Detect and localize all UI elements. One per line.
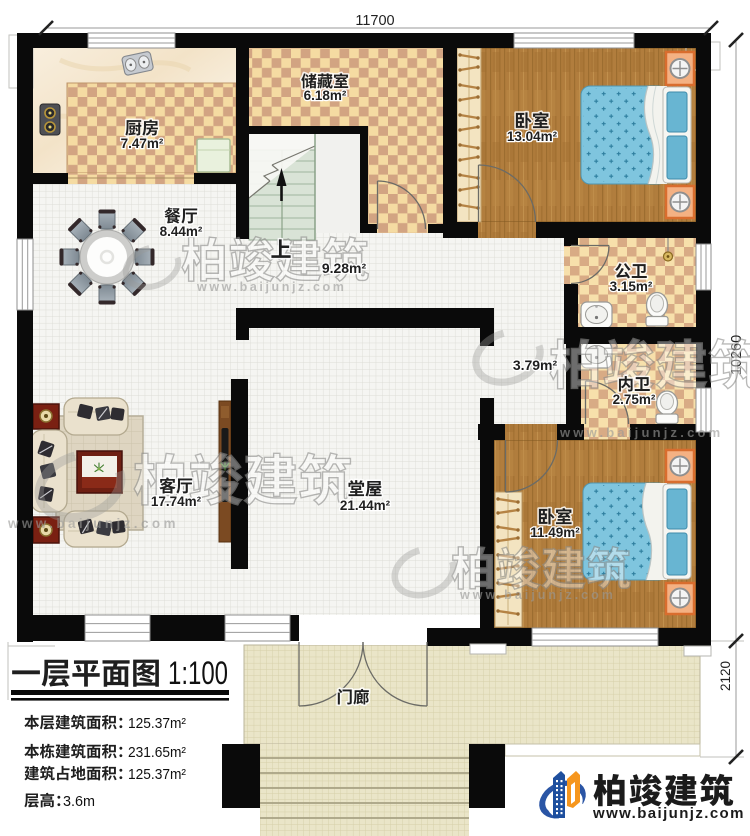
svg-text:www.baijunjz.com: www.baijunjz.com — [592, 805, 745, 822]
svg-text:www.baijunjz.com: www.baijunjz.com — [459, 588, 616, 602]
svg-text:2120: 2120 — [718, 661, 733, 691]
svg-text:11700: 11700 — [355, 13, 394, 29]
svg-text:www.baijunjz.com: www.baijunjz.com — [559, 425, 723, 440]
svg-text:125.37m²: 125.37m² — [128, 716, 186, 732]
svg-text:231.65m²: 231.65m² — [128, 745, 186, 761]
svg-text:7.47m²: 7.47m² — [121, 136, 164, 151]
svg-text:2.75m²: 2.75m² — [613, 392, 656, 407]
svg-text:17.74m²: 17.74m² — [151, 494, 202, 509]
svg-text:6.18m²: 6.18m² — [304, 88, 347, 103]
svg-text:3.15m²: 3.15m² — [610, 279, 653, 294]
svg-text:www.baijunjz.com: www.baijunjz.com — [196, 280, 346, 294]
svg-text:www.baijunjz.com: www.baijunjz.com — [7, 516, 179, 531]
svg-text:3.79m²: 3.79m² — [513, 357, 558, 373]
svg-text:9.28m²: 9.28m² — [322, 260, 367, 276]
svg-text:8.44m²: 8.44m² — [160, 224, 203, 239]
svg-text:1:100: 1:100 — [168, 655, 228, 691]
svg-text:3.6m: 3.6m — [63, 794, 95, 810]
svg-text:13.04m²: 13.04m² — [507, 129, 558, 144]
svg-text:125.37m²: 125.37m² — [128, 767, 186, 783]
svg-text:21.44m²: 21.44m² — [340, 498, 391, 513]
svg-text:11.49m²: 11.49m² — [530, 525, 580, 540]
